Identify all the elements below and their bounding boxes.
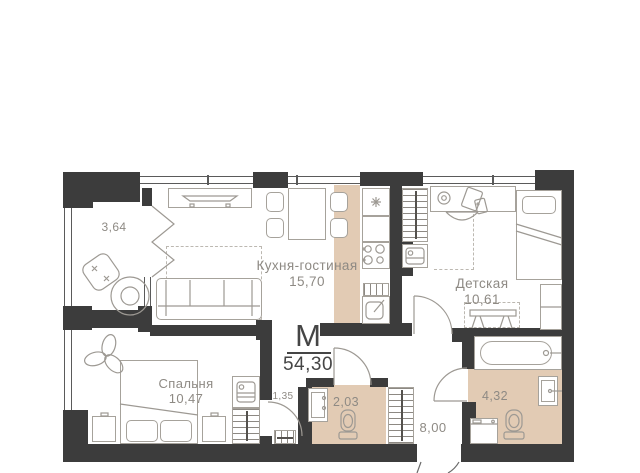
wardrobe-rail bbox=[246, 411, 248, 441]
wall-segment bbox=[92, 310, 138, 328]
kitchen-cabinet bbox=[362, 216, 390, 242]
wardrobe-rail bbox=[415, 191, 417, 239]
wall-segment bbox=[306, 378, 334, 387]
badge-letter: М bbox=[284, 318, 332, 354]
dining-table bbox=[288, 188, 326, 240]
boiler-cabinet bbox=[402, 244, 428, 268]
floor-plan: 3,64 Кухня-гостиная 15,70 Детская 10,61 … bbox=[0, 0, 640, 473]
dining-chair bbox=[266, 192, 284, 212]
wardrobe-rail bbox=[401, 390, 403, 441]
wall-segment bbox=[256, 320, 272, 340]
nightstand bbox=[202, 416, 226, 442]
wall-segment bbox=[63, 172, 93, 208]
dining-chair bbox=[266, 218, 284, 238]
room-label-bedroom: Спальня 10,47 bbox=[136, 377, 236, 407]
door-arc bbox=[434, 368, 467, 401]
room-label-kitchen-living: Кухня-гостиная 15,70 bbox=[232, 258, 382, 289]
room-area-hallway: 8,00 bbox=[408, 421, 458, 436]
tv-console bbox=[168, 188, 252, 208]
room-label-children: Детская 10,61 bbox=[432, 276, 532, 307]
wall-segment bbox=[260, 436, 272, 448]
window bbox=[144, 277, 151, 307]
room-area-balcony: 3,64 bbox=[89, 221, 139, 235]
window-tick bbox=[296, 175, 298, 185]
desk bbox=[430, 186, 516, 212]
wall-segment bbox=[562, 170, 574, 462]
dining-chair bbox=[330, 192, 348, 212]
dashed-zone bbox=[434, 214, 474, 270]
entrance-door bbox=[417, 462, 459, 473]
dining-chair bbox=[330, 218, 348, 238]
water-heater-cabinet bbox=[232, 376, 260, 408]
wardrobe bbox=[540, 284, 562, 330]
wall-segment bbox=[63, 306, 92, 330]
wardrobe-rail bbox=[277, 437, 293, 439]
room-area-bathroom: 4,32 bbox=[470, 389, 520, 403]
wall-segment bbox=[360, 172, 423, 186]
bathtub-basin bbox=[480, 341, 552, 365]
sink-basin bbox=[541, 380, 555, 402]
nightstand bbox=[92, 416, 116, 442]
window bbox=[140, 176, 535, 184]
room-area-wc: 2,03 bbox=[321, 395, 371, 409]
washing-machine bbox=[470, 418, 498, 444]
window bbox=[64, 330, 72, 410]
door-arc bbox=[334, 348, 371, 385]
pillow bbox=[126, 420, 158, 442]
room-area-corridor: 1,35 bbox=[263, 391, 303, 403]
wall-segment bbox=[63, 444, 417, 462]
window-tick bbox=[207, 175, 209, 185]
wardrobe bbox=[274, 430, 296, 444]
window-tick bbox=[492, 175, 494, 185]
pillow bbox=[522, 196, 556, 214]
pillow bbox=[160, 420, 192, 442]
wall-segment bbox=[461, 444, 574, 462]
kitchen-sink bbox=[362, 296, 390, 324]
wall-segment bbox=[370, 378, 388, 387]
wall-segment bbox=[150, 325, 256, 336]
badge-total-area: 54,30 bbox=[278, 354, 338, 376]
wardrobe bbox=[402, 188, 428, 242]
window bbox=[64, 206, 72, 306]
wall-segment bbox=[253, 172, 288, 188]
wardrobe bbox=[232, 408, 260, 444]
fridge bbox=[362, 188, 390, 216]
wall-segment bbox=[63, 410, 88, 446]
wall-segment bbox=[142, 188, 152, 206]
